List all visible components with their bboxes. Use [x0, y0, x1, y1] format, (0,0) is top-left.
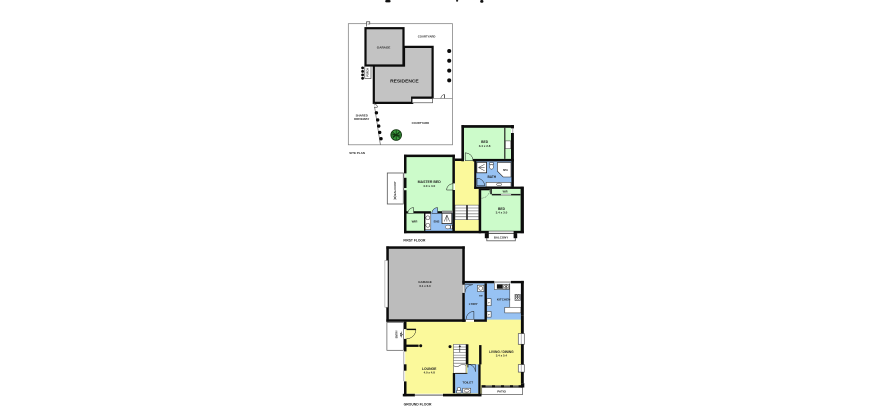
svg-text:BALCONY: BALCONY: [393, 181, 397, 195]
svg-text:3.4 x 2.8: 3.4 x 2.8: [479, 144, 491, 148]
svg-text:PORCH: PORCH: [368, 68, 370, 77]
svg-text:3.4 x 5.4: 3.4 x 5.4: [496, 353, 508, 357]
svg-text:COURTYARD: COURTYARD: [412, 121, 430, 125]
svg-text:BATH: BATH: [487, 175, 496, 179]
svg-text:WIR: WIR: [503, 191, 508, 194]
svg-text:SITE PLAN: SITE PLAN: [349, 151, 365, 155]
svg-text:PATIO: PATIO: [497, 390, 506, 394]
svg-text:DRIVEWAY: DRIVEWAY: [354, 117, 369, 121]
svg-text:ENS: ENS: [434, 219, 440, 223]
svg-text:GROUND FLOOR: GROUND FLOOR: [404, 402, 432, 406]
svg-text:4.0 x 4.8: 4.0 x 4.8: [424, 370, 436, 374]
svg-text:6.1 x 6.0: 6.1 x 6.0: [419, 284, 431, 288]
svg-text:L'DRY: L'DRY: [469, 302, 478, 306]
svg-text:FIRST FLOOR: FIRST FLOOR: [403, 239, 426, 243]
svg-text:WIR: WIR: [412, 220, 419, 224]
svg-text:RESIDENCE: RESIDENCE: [390, 79, 419, 85]
svg-text:3.4 x 3.0: 3.4 x 3.0: [496, 210, 508, 214]
svg-text:BALCONY: BALCONY: [494, 236, 508, 240]
svg-text:GARAGE: GARAGE: [377, 45, 391, 49]
svg-text:4.0 x 4.0: 4.0 x 4.0: [423, 184, 435, 188]
svg-text:TOILET: TOILET: [462, 381, 473, 385]
svg-text:KITCHEN: KITCHEN: [497, 298, 510, 302]
svg-text:WM: WM: [479, 295, 483, 297]
svg-text:ENTRY: ENTRY: [395, 330, 398, 338]
svg-text:SPA: SPA: [503, 168, 508, 172]
svg-text:COURTYARD: COURTYARD: [418, 34, 436, 38]
